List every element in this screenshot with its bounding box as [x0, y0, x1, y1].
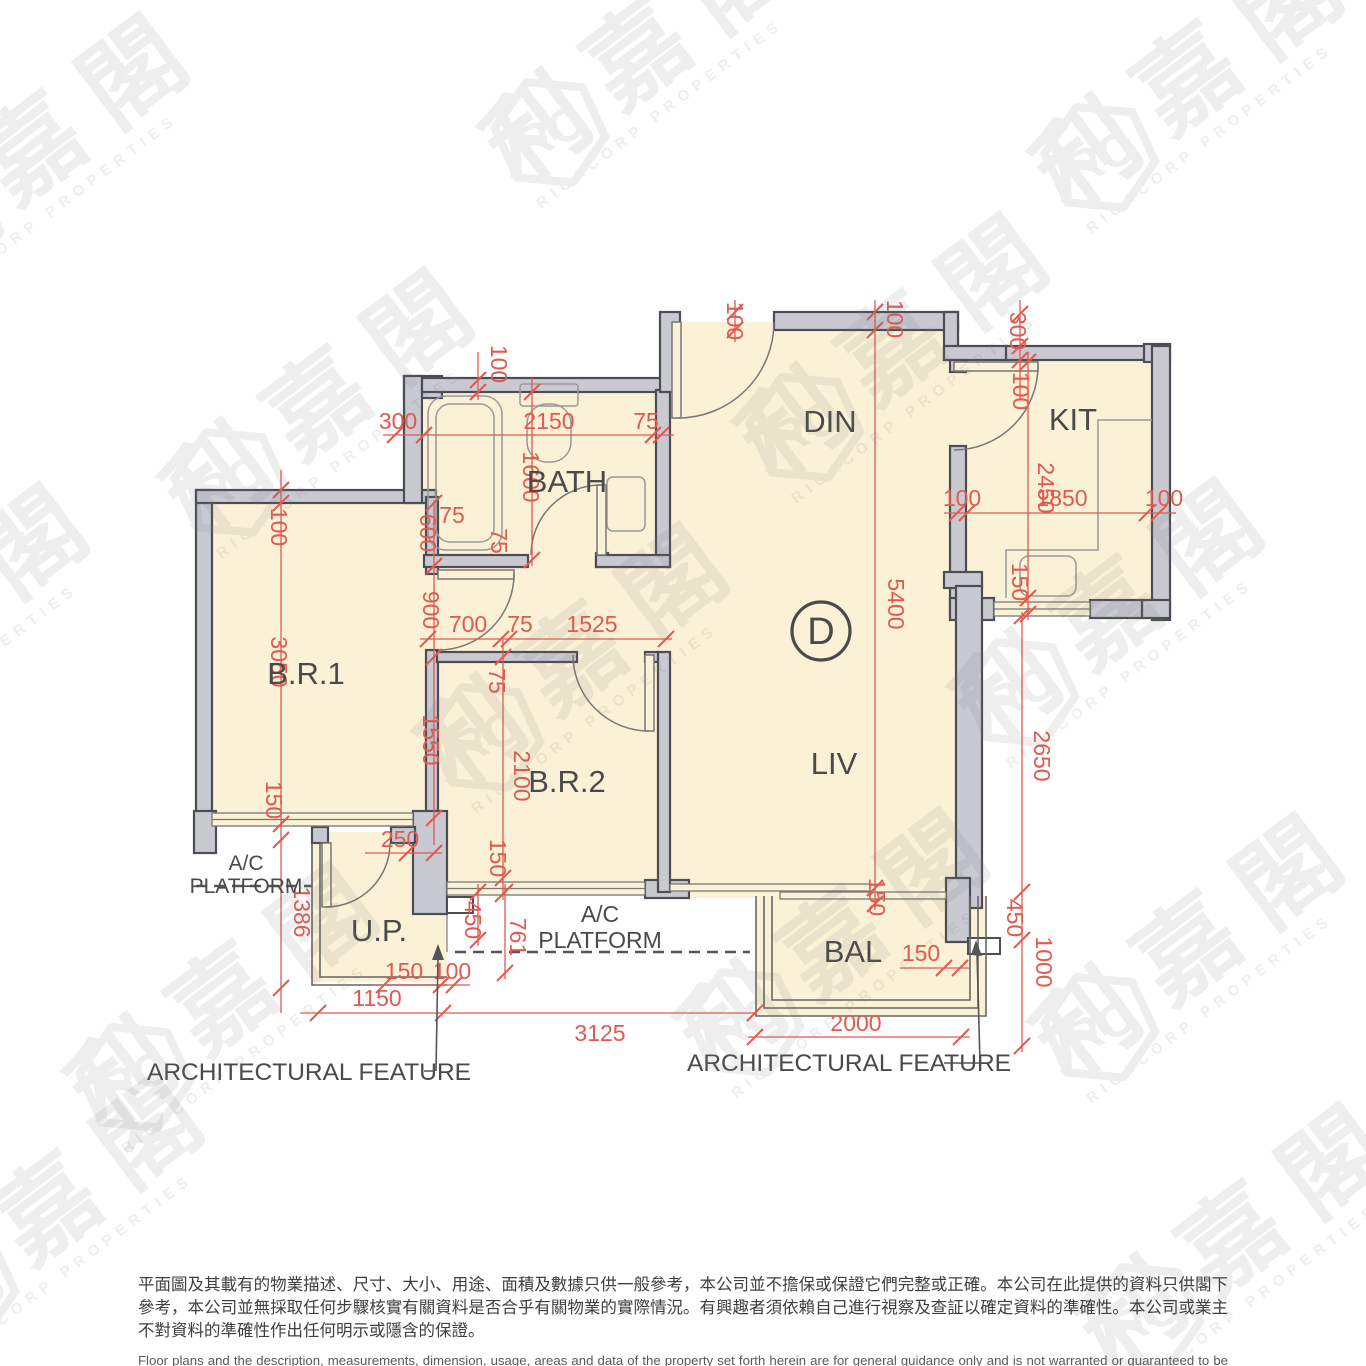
disclaimer-zh: 平面圖及其載有的物業描述、尺寸、大小、用途、面積及數據只供一般參考，本公司並不擔…	[138, 1274, 1228, 1343]
dim-label: 5400	[883, 578, 909, 629]
room-label-din: DIN	[803, 404, 856, 439]
main-door-leaf	[672, 322, 681, 418]
dim-label: 150	[261, 781, 287, 819]
dim-label: 2650	[1029, 730, 1055, 781]
dim-label: 100	[943, 485, 981, 511]
dim-label: 900	[418, 591, 444, 629]
dim-label: 300	[379, 408, 417, 434]
ac-platform-center-line1: A/C	[581, 901, 619, 927]
disclaimer: 平面圖及其載有的物業描述、尺寸、大小、用途、面積及數據只供一般參考，本公司並不擔…	[138, 1274, 1228, 1366]
dim-label: 100	[1008, 372, 1034, 410]
room-label-br2: B.R.2	[528, 764, 606, 799]
dim-label: 100	[882, 300, 908, 338]
floor-plan-page: 300 2150 75 75 700 75 1525 250 150 100 1…	[0, 0, 1366, 1366]
dim-label: 3125	[574, 1020, 625, 1046]
ac-platform-center-line2: PLATFORM	[538, 927, 662, 953]
unit-label: D	[807, 611, 834, 653]
architectural-feature-labels: ARCHITECTURAL FEATURE ARCHITECTURAL FEAT…	[147, 1050, 1011, 1086]
dim-label: 75	[484, 668, 510, 694]
dim-label: 150	[485, 839, 511, 877]
ac-platform-left-line1: A/C	[228, 852, 263, 875]
dim-label: 2450	[1033, 462, 1059, 513]
br2-door-leaf	[645, 655, 654, 731]
dim-label: 2150	[523, 408, 574, 434]
dim-label: 150	[385, 958, 423, 984]
architectural-feature-label-left: ARCHITECTURAL FEATURE	[147, 1059, 471, 1086]
dim-label: 150	[1007, 563, 1033, 601]
dim-label: 450	[1002, 899, 1028, 937]
dim-label: 600	[415, 514, 441, 552]
dim-label: 1550	[418, 714, 444, 765]
dim-label: 1525	[566, 611, 617, 637]
dim-label: 100	[1145, 485, 1183, 511]
dim-label: 150	[902, 940, 940, 966]
ac-platform-left-line2: PLATFORM	[190, 875, 303, 898]
dim-label: 100	[266, 508, 292, 546]
br1-door-leaf	[438, 570, 514, 579]
room-label-liv: LIV	[811, 746, 858, 781]
floor-plan: 300 2150 75 75 700 75 1525 250 150 100 1…	[0, 0, 1366, 1366]
dim-label: 75	[507, 611, 533, 637]
dim-label: 300	[1005, 312, 1031, 350]
dim-label: 100	[486, 345, 512, 383]
room-label-br1: B.R.1	[267, 656, 345, 691]
disclaimer-en: Floor plans and the description, measure…	[138, 1353, 1228, 1366]
dim-label: 1150	[352, 985, 401, 1011]
room-label-kit: KIT	[1049, 402, 1097, 437]
room-label-up: U.P.	[351, 913, 407, 948]
dim-label: 100	[722, 302, 748, 340]
dim-label: 700	[449, 611, 487, 637]
room-label-bath: BATH	[527, 464, 607, 499]
dim-label: 761	[505, 918, 531, 956]
up-door-leaf	[322, 843, 331, 907]
dim-label: 75	[439, 502, 465, 528]
dim-label: 75	[486, 528, 512, 554]
architectural-feature-label-right: ARCHITECTURAL FEATURE	[687, 1050, 1011, 1077]
dim-label: 450	[460, 901, 486, 939]
room-label-bal: BAL	[824, 934, 883, 969]
dim-label: 75	[633, 408, 659, 434]
dim-label: 1000	[1031, 936, 1057, 987]
dim-label: 250	[381, 826, 419, 852]
dim-label: 2000	[830, 1010, 881, 1036]
dim-label: 150	[864, 878, 890, 916]
